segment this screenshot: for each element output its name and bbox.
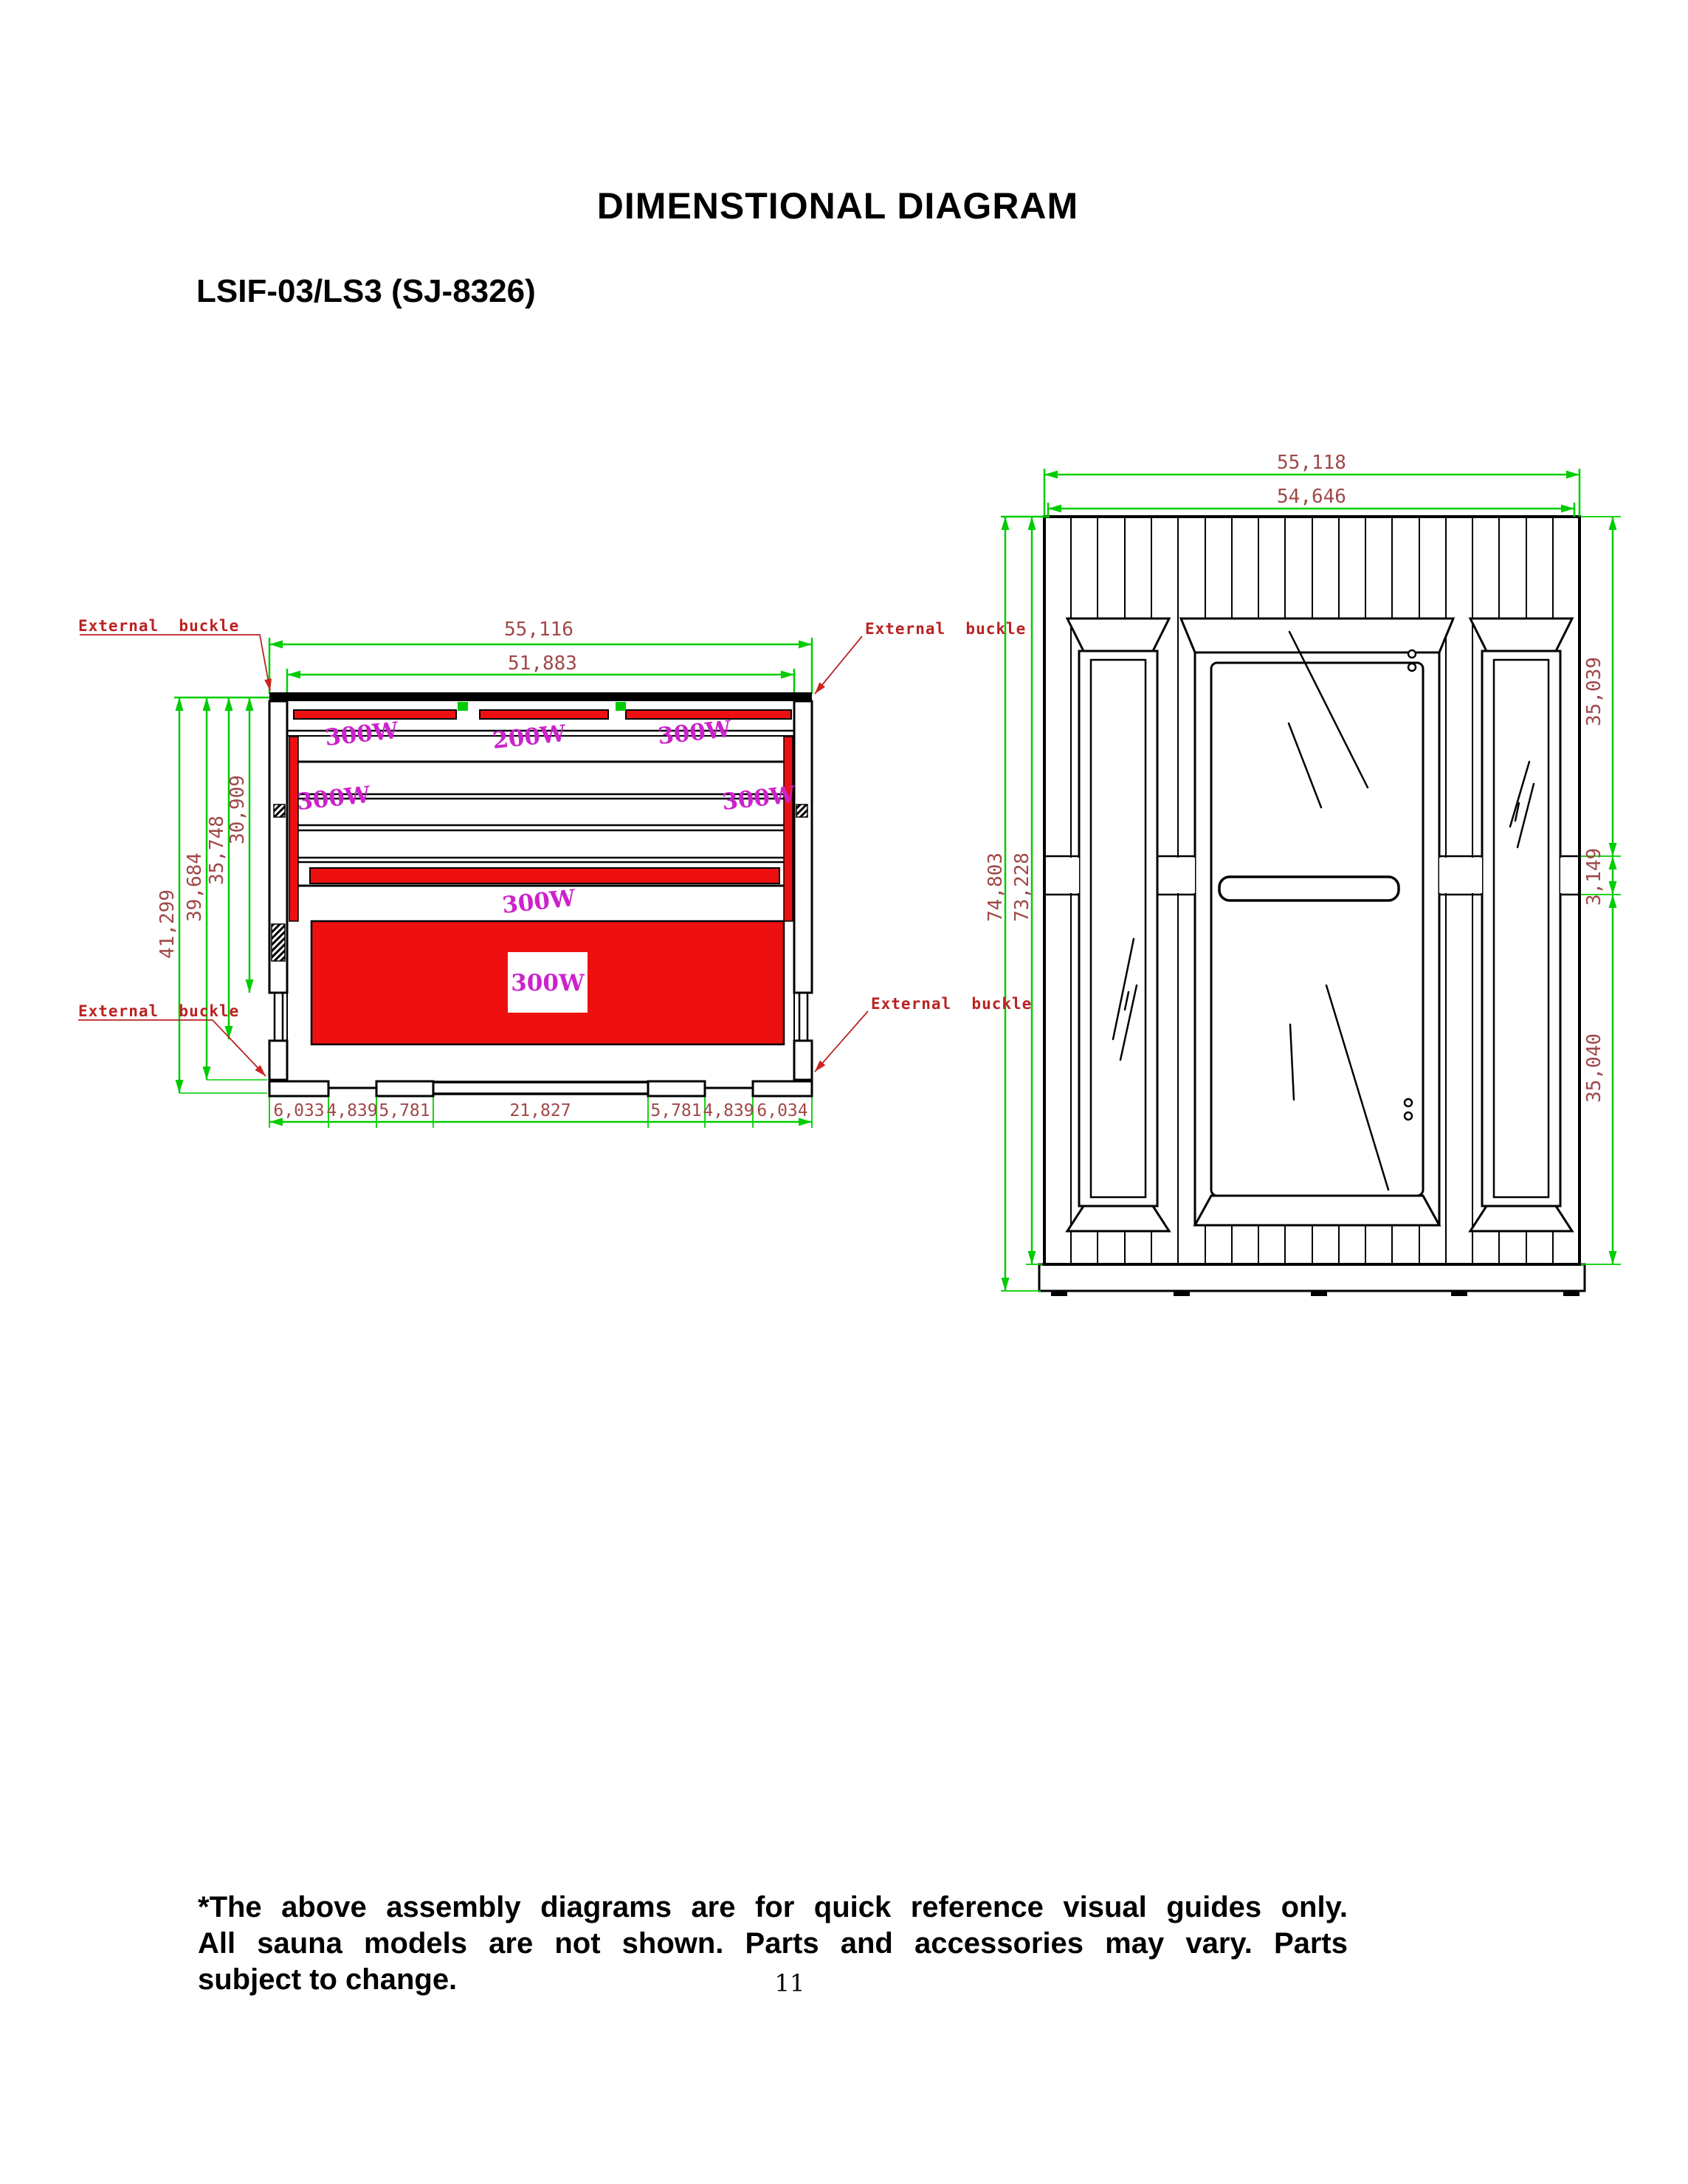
panel-width-inner-dim: 54,646	[1260, 486, 1363, 508]
door	[1181, 619, 1453, 1225]
bench-heater	[310, 868, 779, 883]
base-rail	[269, 1081, 812, 1096]
floor-heater-label: 300W	[496, 970, 599, 996]
ceiling-bar	[269, 692, 812, 701]
base-plinth	[1039, 1264, 1585, 1291]
right-window	[1470, 619, 1572, 1231]
left-window	[1067, 619, 1169, 1231]
bottom-dim-4: 21,827	[507, 1101, 573, 1120]
right-wall-bottom-block	[794, 1041, 812, 1080]
dimensional-drawing	[0, 0, 1688, 2184]
model-number: LSIF-03/LS3 (SJ-8326)	[196, 273, 536, 310]
external-buckle-label-bottom-left: External buckle	[78, 1002, 239, 1020]
left-window-header	[1067, 619, 1169, 651]
panel-height-inner-dim: 73,228	[1011, 836, 1033, 939]
right-window-glass	[1494, 660, 1549, 1197]
page-title: DIMENSTIONAL DIAGRAM	[413, 185, 1262, 227]
front-width-inner-dim: 51,883	[491, 652, 594, 675]
door-glass-panel	[1211, 663, 1423, 1196]
top-heater-center	[480, 710, 608, 719]
front-height-dim-1: 41,299	[156, 872, 179, 976]
right-window-header	[1470, 619, 1572, 651]
panel-right-dim-bottom: 35,040	[1583, 1016, 1605, 1120]
panel-height-outer-dim: 74,803	[985, 836, 1007, 939]
disclaimer-line-2: All sauna models are not shown. Parts an…	[198, 1926, 1348, 1962]
buckle-hatch-lower-left	[272, 924, 285, 961]
front-height-dim-2: 39,684	[184, 836, 206, 939]
external-buckle-label-bottom-right: External buckle	[871, 995, 1032, 1013]
door-handle	[1219, 877, 1399, 900]
panel-right-dim-middle: 3,149	[1583, 825, 1605, 929]
panel-view-drawing	[1001, 469, 1621, 1296]
left-window-sill	[1067, 1206, 1169, 1231]
side-heater-right	[784, 737, 793, 921]
bottom-dim-3: 5,781	[371, 1101, 438, 1120]
door-sill	[1195, 1196, 1439, 1225]
page: DIMENSTIONAL DIAGRAM LSIF-03/LS3 (SJ-832…	[0, 0, 1688, 2184]
front-height-dim-4: 30,909	[227, 758, 249, 861]
panel-right-dim-top: 35,039	[1583, 640, 1605, 743]
front-width-outer-dim: 55,116	[487, 619, 590, 641]
green-clip-left	[458, 702, 468, 711]
door-header	[1181, 619, 1453, 652]
left-wall-bottom-block	[269, 1041, 287, 1080]
external-buckle-label-top-left: External buckle	[78, 617, 239, 635]
panel-width-outer-dim: 55,118	[1260, 452, 1363, 474]
green-clip-right	[616, 702, 626, 711]
external-buckle-label-top-right: External buckle	[865, 620, 1026, 638]
bottom-dim-7: 6,034	[749, 1101, 816, 1120]
left-window-glass	[1091, 660, 1146, 1197]
front-height-dim-3: 35,748	[206, 799, 228, 902]
page-number: 11	[760, 1969, 819, 1997]
right-window-sill	[1470, 1206, 1572, 1231]
side-heater-left	[289, 737, 298, 921]
right-wall	[794, 701, 812, 993]
disclaimer-line-1: *The above assembly diagrams are for qui…	[198, 1890, 1348, 1926]
top-heater-left	[294, 710, 456, 719]
